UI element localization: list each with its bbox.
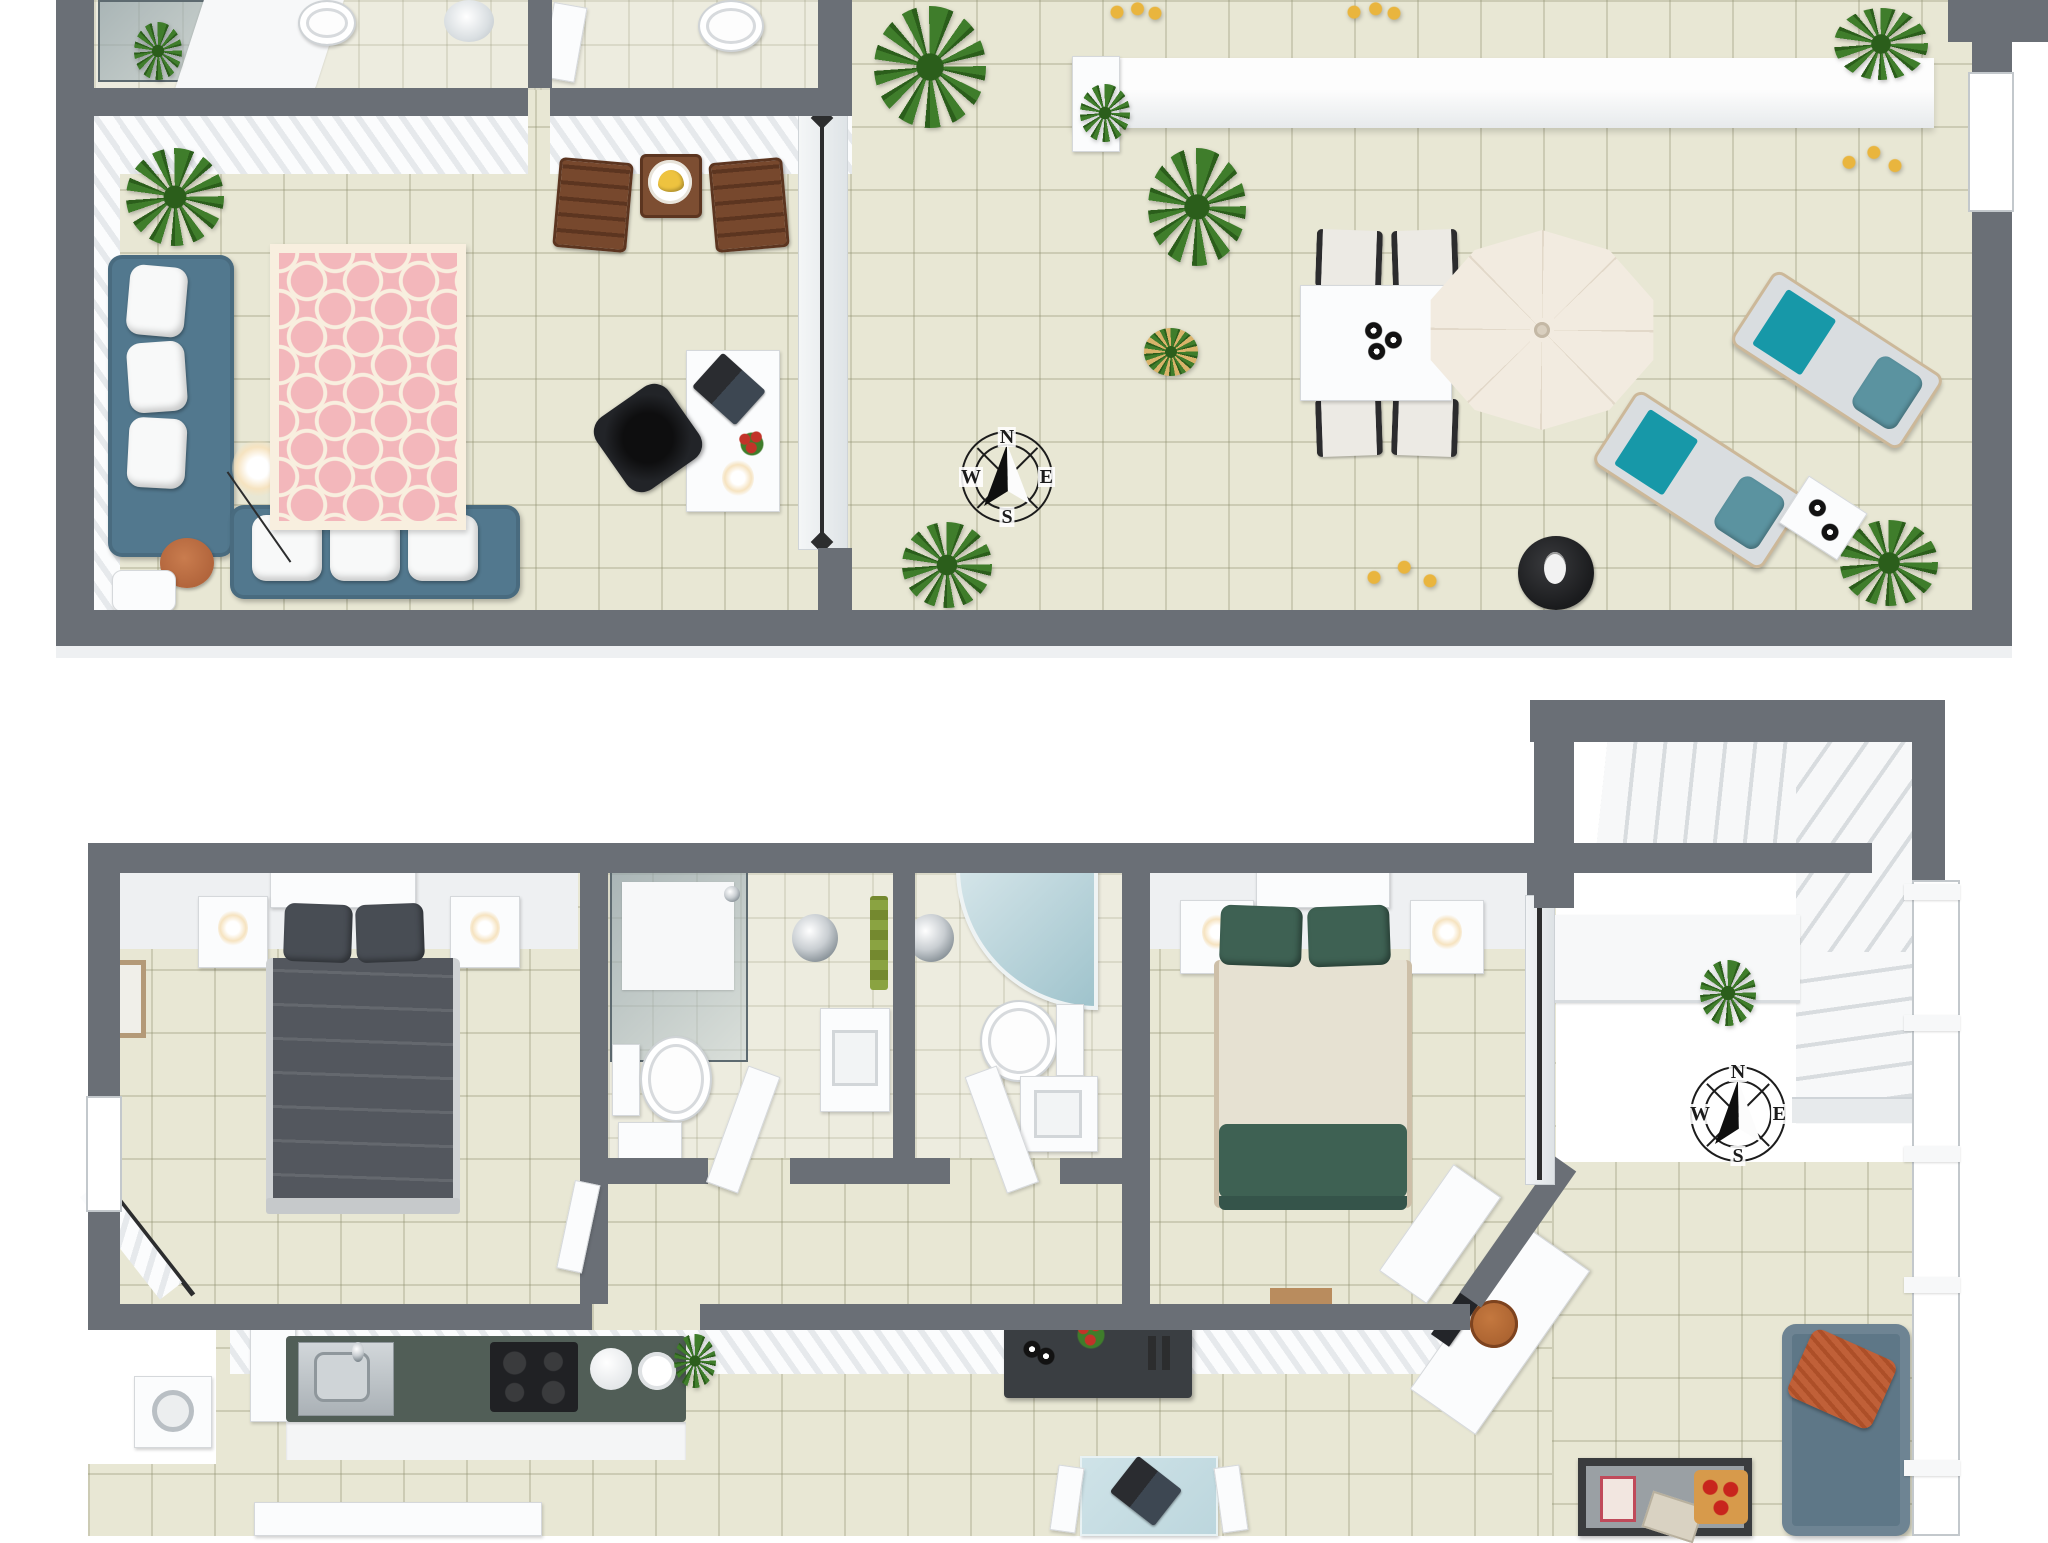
lower-floor-plan: N S W E [0,0,2048,1536]
compass-label-south: S [1730,1146,1745,1166]
vanity-basin [832,1030,878,1086]
bathroom-divider-wall [893,873,915,1158]
bed-pillow [283,903,353,963]
window-sill [1904,1146,1960,1162]
bedroom-window [86,1096,122,1212]
bedroom2-curtain-rod [1537,900,1542,1180]
stair-landing [1552,915,1800,1003]
toilet [640,1036,712,1122]
bathroom-south-wall [1060,1158,1122,1184]
window-sill [1904,884,1960,900]
candles [1162,1336,1170,1370]
washer-door [152,1390,194,1432]
bed-pillow [1307,905,1391,968]
serving-tray [1694,1470,1748,1524]
main-top-wall [88,843,1872,873]
hallway-plant [1700,960,1756,1026]
stair-top-wall [1530,700,1945,742]
floor-plan-render: { "compass": { "n": "N", "e": "E", "s": … [0,0,2048,1536]
kettle [590,1348,632,1390]
cooktop [490,1342,578,1412]
window-sill [1904,1460,1960,1476]
stair-bottom-ledge [1792,1097,1912,1123]
bed-footboard [266,1198,460,1214]
mirror-light [792,914,838,962]
bed-blanket [1219,1124,1407,1198]
bed-blanket-edge [1219,1196,1407,1210]
compass-rose: N S W E [1690,1066,1786,1162]
kitchen-faucet [352,1342,364,1362]
plate [638,1352,676,1390]
bed-pillow [355,903,425,963]
compass-label-west: W [1688,1104,1712,1124]
stair-left-wall [1534,700,1574,908]
window-wall [1912,880,1960,1536]
round-side-table [1470,1300,1518,1348]
bed-pillow [1219,905,1303,968]
compass-label-east: E [1771,1104,1788,1124]
compass-label-north: N [1729,1062,1747,1082]
sink-basin [1034,1090,1082,1138]
bathroom2-right-wall [1122,873,1150,1304]
exterior-wall-left [88,873,120,1310]
corridor-south-wall [700,1304,1470,1330]
candles [1148,1336,1156,1370]
counter-plant [674,1334,716,1388]
toilet-cistern [612,1044,640,1116]
double-bed-dark [266,958,460,1210]
stair-right-wall [1912,700,1945,880]
table-lamp [1432,914,1462,950]
table-lamp [470,910,500,946]
kitchen-island [254,1502,542,1536]
bathroom-south-wall [790,1158,950,1184]
bathroom-south-wall [608,1158,708,1184]
window-sill [1904,1015,1960,1031]
shower-head [724,886,740,902]
toilet-cistern [1056,1004,1084,1076]
magazine [1600,1476,1636,1522]
table-lamp [218,910,248,946]
corridor-south-wall [88,1304,592,1330]
shower-tray [622,882,734,990]
sideboard-cups [1018,1338,1058,1366]
window-sill [1904,1277,1960,1293]
kitchen-cabinet-base [286,1422,686,1460]
towel-rail [870,896,888,990]
